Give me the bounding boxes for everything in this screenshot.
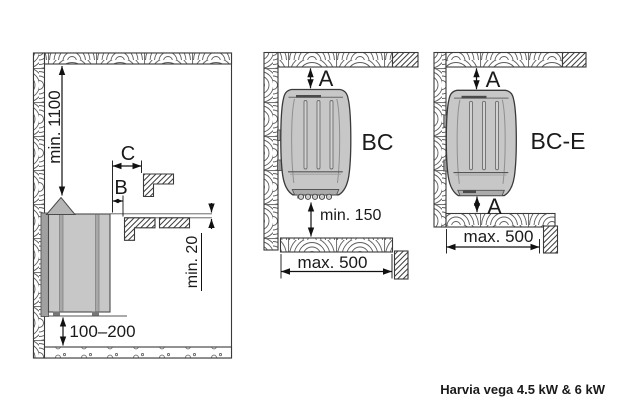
control-knobs — [298, 194, 331, 199]
caption: Harvia vega 4.5 kW & 6 kW — [420, 383, 605, 397]
ceiling-section — [446, 53, 563, 68]
platform-support — [395, 251, 409, 279]
bench-platform — [281, 238, 393, 252]
dim-label-c: C — [118, 143, 138, 165]
dim-label-min-20: min. 20 — [184, 233, 202, 291]
ceiling-section — [278, 53, 393, 68]
dim-label-a-bc: A — [316, 67, 336, 91]
wall-section — [264, 53, 278, 251]
model-label-bce: BC-E — [531, 129, 586, 154]
dim-label-a-top-bce: A — [483, 68, 503, 92]
installation-diagram: min. 1100 C B min. 20 100–200 A BC min. … — [0, 0, 620, 418]
ceiling-end — [393, 53, 419, 68]
heater-bc — [278, 90, 351, 200]
ceiling-section — [45, 53, 232, 64]
diagram-graphics — [0, 0, 620, 418]
wall-section — [434, 53, 446, 228]
dim-label-max-500-bce: max. 500 — [459, 228, 539, 247]
platform-support — [544, 226, 558, 253]
dim-label-max-500-bc: max. 500 — [293, 254, 373, 273]
dim-label-min-1100: min. 1100 — [46, 82, 64, 172]
floor-section — [45, 347, 232, 358]
heater-bce — [444, 90, 517, 195]
dim-label-a-bottom-bce: A — [485, 195, 505, 219]
dim-label-b: B — [111, 177, 131, 199]
bc-diagram — [264, 53, 418, 280]
ceiling-end — [563, 53, 587, 68]
dim-label-min-150: min. 150 — [320, 207, 381, 225]
model-label-bc: BC — [362, 130, 394, 155]
dim-label-100-200: 100–200 — [60, 323, 145, 342]
